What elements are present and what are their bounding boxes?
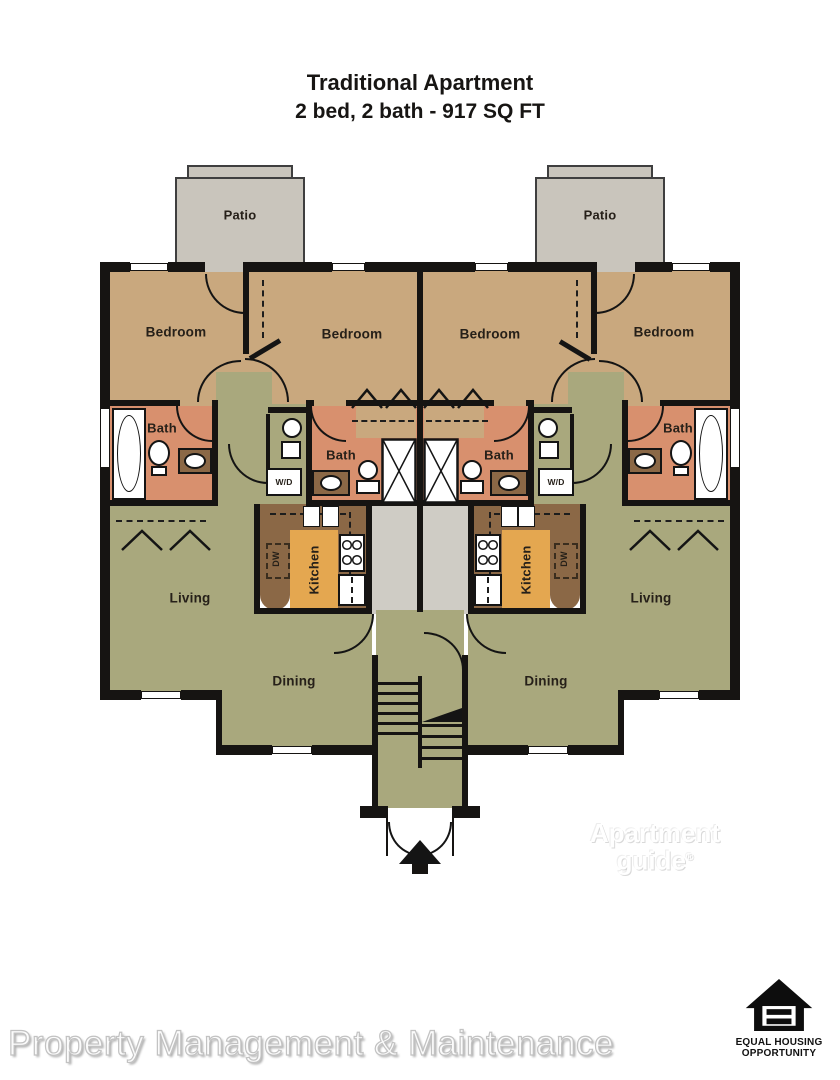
- equal-housing-text-line2: OPPORTUNITY: [722, 1048, 836, 1059]
- window: [272, 746, 312, 754]
- footer-company-name: Property Management & Maintenance: [8, 1024, 614, 1064]
- equal-housing-house-icon: [744, 978, 814, 1032]
- refrigerator-door-line: [487, 577, 489, 603]
- bedroom-label: Bedroom: [460, 327, 521, 342]
- kitchen-sink: [322, 506, 339, 527]
- wall-segment: [530, 407, 572, 413]
- window: [332, 263, 365, 271]
- bedroom-label: Bedroom: [634, 325, 695, 340]
- stair-tread: [422, 757, 462, 760]
- closet-shelf-dashes: [262, 280, 264, 338]
- stair-tread: [378, 732, 418, 735]
- wall-segment: [528, 406, 534, 506]
- wall-segment: [212, 400, 218, 506]
- living-label: Living: [631, 591, 672, 606]
- kitchen-sink: [501, 506, 518, 527]
- wall-segment: [462, 745, 528, 755]
- wall-segment: [181, 690, 216, 700]
- bathtub-basin: [699, 415, 723, 492]
- apartment-guide-watermark: Apartment guide®: [575, 820, 735, 873]
- window: [475, 263, 508, 271]
- closet-shelf-dashes: [634, 520, 724, 522]
- stair-tread: [378, 682, 418, 685]
- utility-shelf: [539, 441, 559, 459]
- wall-segment: [100, 262, 110, 408]
- wall-segment: [312, 745, 378, 755]
- stair-tread: [378, 722, 418, 725]
- dining-label: Dining: [272, 674, 315, 689]
- dishwasher-label: DW: [559, 551, 569, 566]
- wall-segment: [622, 500, 730, 506]
- utility-shelf: [281, 441, 301, 459]
- dishwasher-label: DW: [271, 551, 281, 566]
- window: [659, 691, 699, 699]
- toilet: [148, 440, 170, 466]
- patio-label: Patio: [584, 208, 617, 223]
- washer-dryer-label: W/D: [275, 477, 292, 487]
- wall-segment: [660, 400, 730, 406]
- closet-bifold-doors-icon: [422, 386, 490, 410]
- bathtub-basin: [117, 415, 141, 492]
- pedestal-sink-base: [460, 480, 484, 494]
- pedestal-sink: [358, 460, 378, 480]
- stair-divider: [418, 676, 422, 768]
- party-wall: [417, 262, 423, 612]
- stair-break-mark: [422, 708, 462, 722]
- closet-shelf-dashes: [576, 280, 578, 338]
- closet-bifold-doors-icon: [626, 526, 722, 554]
- wall-segment: [508, 262, 595, 272]
- sink: [498, 475, 520, 491]
- refrigerator-door-line: [351, 577, 353, 603]
- page-title: Traditional Apartment: [0, 70, 840, 96]
- wall-segment: [372, 655, 378, 815]
- stove-burners-icon: [340, 536, 364, 570]
- washer-dryer-label: W/D: [547, 477, 564, 487]
- wall-segment: [168, 262, 205, 272]
- shower-stall: [423, 438, 459, 504]
- door-jamb: [452, 818, 454, 856]
- toilet-tank: [151, 466, 167, 476]
- window: [672, 263, 710, 271]
- pedestal-sink: [462, 460, 482, 480]
- wall-segment: [254, 504, 260, 610]
- entry-arrow-icon: [412, 864, 428, 874]
- closet-shelf-dashes: [426, 420, 488, 422]
- pedestal-sink-base: [356, 480, 380, 494]
- hallway-gray-left: [372, 504, 418, 614]
- window: [141, 691, 181, 699]
- patio-label: Patio: [224, 208, 257, 223]
- stair-tread: [378, 692, 418, 695]
- toilet: [670, 440, 692, 466]
- wall-segment: [268, 407, 310, 413]
- wall-segment: [568, 745, 624, 755]
- wall-segment: [635, 262, 672, 272]
- wall-segment: [216, 745, 272, 755]
- wall-segment: [730, 262, 740, 408]
- wall-segment: [100, 690, 141, 700]
- kitchen-sink: [303, 506, 320, 527]
- closet-bifold-doors-icon: [118, 526, 214, 554]
- living-label: Living: [170, 591, 211, 606]
- sink: [184, 453, 206, 469]
- wall-segment: [452, 806, 480, 818]
- dining-label: Dining: [524, 674, 567, 689]
- wall-segment: [580, 504, 586, 610]
- watermark-line2: guide®: [575, 846, 735, 873]
- wall-segment: [360, 806, 388, 818]
- equal-housing-text-line1: EQUAL HOUSING: [722, 1037, 836, 1048]
- closet-shelf-dashes: [352, 420, 414, 422]
- patio-door-opening-right: [595, 262, 635, 272]
- wall-segment: [730, 468, 740, 700]
- wall-segment: [624, 690, 659, 700]
- patio-door-opening-left: [205, 262, 245, 272]
- page-subtitle: 2 bed, 2 bath - 917 SQ FT: [0, 100, 840, 124]
- wall-segment: [100, 468, 110, 700]
- equal-housing-logo: EQUAL HOUSING OPPORTUNITY: [722, 978, 836, 1059]
- bedroom-label: Bedroom: [146, 325, 207, 340]
- floor-plan-page: Traditional Apartment 2 bed, 2 bath - 91…: [0, 0, 840, 1080]
- kitchen-label: Kitchen: [519, 545, 534, 594]
- window: [730, 408, 740, 468]
- wall-segment: [462, 655, 468, 815]
- hallway-gray-right: [422, 504, 468, 614]
- registered-mark: ®: [686, 852, 693, 863]
- closet-shelf-dashes: [116, 520, 206, 522]
- wall-segment: [110, 400, 180, 406]
- window: [528, 746, 568, 754]
- sink: [320, 475, 342, 491]
- toilet-tank: [673, 466, 689, 476]
- shower-stall: [381, 438, 417, 504]
- bath-label: Bath: [326, 448, 356, 463]
- stair-tread: [422, 724, 462, 727]
- stove-burners-icon: [476, 536, 500, 570]
- bedroom-label: Bedroom: [322, 327, 383, 342]
- closet-bifold-doors-icon: [350, 386, 418, 410]
- window: [130, 263, 168, 271]
- bath-label: Bath: [147, 421, 177, 436]
- kitchen-label: Kitchen: [307, 545, 322, 594]
- bath-label: Bath: [484, 448, 514, 463]
- watermark-line1: Apartment: [575, 820, 735, 846]
- wall-segment: [245, 262, 332, 272]
- stair-tread: [378, 712, 418, 715]
- stair-tread: [422, 746, 462, 749]
- sink: [634, 453, 656, 469]
- water-heater: [538, 418, 558, 438]
- wall-segment: [366, 504, 372, 610]
- entry-arrow-icon: [399, 840, 441, 864]
- stair-tread: [422, 735, 462, 738]
- water-heater: [282, 418, 302, 438]
- window: [100, 408, 110, 468]
- stair-tread: [378, 702, 418, 705]
- kitchen-sink: [518, 506, 535, 527]
- wall-segment: [699, 690, 740, 700]
- bath-label: Bath: [663, 421, 693, 436]
- wall-segment: [110, 500, 218, 506]
